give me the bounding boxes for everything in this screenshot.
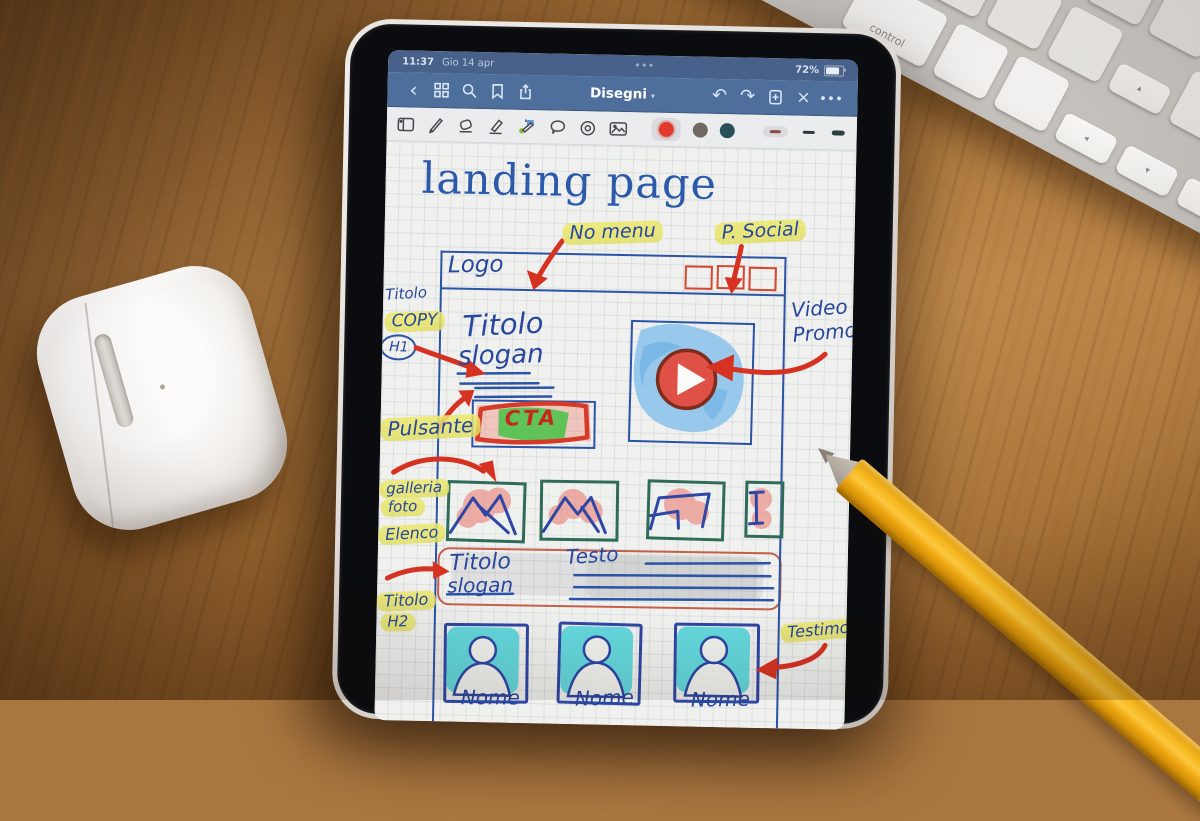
gallery-thumbnail	[744, 481, 784, 539]
document-title[interactable]: Disegni▾	[539, 84, 705, 103]
insert-image-icon[interactable]	[609, 116, 628, 140]
battery-percent: 72%	[795, 64, 819, 75]
back-icon[interactable]: ‹	[399, 77, 427, 102]
annotation-copy: COPY	[384, 311, 444, 333]
add-page-icon[interactable]	[761, 85, 789, 110]
page-thumbnails-icon[interactable]	[427, 78, 455, 103]
document-title-label: Disegni	[590, 85, 647, 102]
annotation-titolo-h1: Titolo	[385, 285, 428, 303]
page-title: landing page	[421, 154, 717, 210]
hero-title: Titolo	[462, 308, 544, 342]
arrow-left-icon: ◂	[1058, 120, 1114, 156]
search-icon[interactable]	[455, 78, 483, 103]
annotation-promo: Promo	[792, 320, 857, 346]
video-box	[628, 320, 755, 445]
eraser-tool-icon[interactable]	[457, 113, 475, 137]
more-icon[interactable]: •••	[817, 86, 845, 111]
gallery-thumbnail	[539, 480, 619, 542]
annotation-no-menu: No menu	[562, 220, 663, 245]
stroke-medium[interactable]	[800, 120, 818, 144]
sidebar-panel-icon[interactable]	[397, 112, 415, 136]
airpods-case-led	[159, 384, 165, 390]
color-swatch-red-selected[interactable]	[652, 118, 681, 142]
testo-label: Testo	[565, 544, 619, 568]
shape-recognition-tool-icon[interactable]	[517, 114, 537, 138]
annotation-testimony: Testimony	[780, 616, 857, 643]
color-swatch-teal[interactable]	[720, 123, 735, 138]
annotation-elenco: Elenco	[378, 523, 446, 545]
battery-icon	[824, 65, 844, 76]
highlighter-tool-icon[interactable]	[487, 114, 505, 138]
logo-label: Logo	[448, 253, 504, 278]
pen-tool-icon[interactable]	[427, 112, 445, 136]
color-swatch-gray[interactable]	[693, 122, 708, 137]
ipad: 11:37 Gio 14 apr ••• 72% ‹ Disegni▾	[331, 18, 902, 729]
keyboard-key	[932, 22, 1010, 100]
keyboard-key	[992, 55, 1070, 133]
status-time: 11:37	[402, 56, 434, 68]
annotation-h1: H1	[389, 340, 409, 355]
arrow-left-key: ◂	[1053, 112, 1118, 166]
arrow-right-key: ▸	[1175, 176, 1200, 230]
chevron-down-icon: ▾	[651, 92, 655, 101]
annotation-titolo-h2: Titolo	[376, 590, 435, 612]
cta-label: CTA	[505, 407, 559, 430]
annotation-foto: foto	[381, 498, 425, 517]
status-date: Gio 14 apr	[442, 57, 495, 69]
stroke-thin-selected[interactable]	[763, 126, 788, 137]
gallery-thumbnail	[446, 480, 527, 543]
annotation-p-social: P. Social	[714, 219, 806, 245]
social-icon-box	[684, 265, 712, 290]
status-ellipsis[interactable]: •••	[494, 58, 795, 74]
bookmark-icon[interactable]	[483, 79, 511, 104]
social-icon-box	[716, 265, 744, 290]
arrow-right-icon: ▸	[1180, 185, 1200, 221]
arrow-down-icon: ▾	[1119, 153, 1175, 189]
stickers-tool-icon[interactable]	[579, 116, 597, 140]
stroke-thick[interactable]	[829, 121, 847, 145]
nome-label: Nome	[575, 687, 635, 710]
keyboard-key	[1046, 5, 1124, 83]
drawing-canvas[interactable]: landing page No menu P. Social Logo Tito…	[374, 141, 856, 730]
arrow-up-icon: ▴	[1112, 71, 1168, 107]
ipad-bezel: 11:37 Gio 14 apr ••• 72% ‹ Disegni▾	[337, 23, 897, 724]
arrow-down-key: ▾	[1114, 144, 1179, 198]
redo-icon[interactable]: ↷	[733, 84, 761, 109]
share-icon[interactable]	[511, 80, 539, 105]
ipad-screen: 11:37 Gio 14 apr ••• 72% ‹ Disegni▾	[374, 50, 858, 730]
annotation-video: Video	[790, 296, 848, 321]
gallery-thumbnail	[646, 479, 726, 541]
annotation-pulsante: Pulsante	[380, 414, 481, 442]
annotation-h2: H2	[380, 613, 415, 631]
hero-subtitle: slogan	[458, 341, 544, 371]
annotation-galleria: galleria	[379, 479, 449, 499]
section-title: Titolo	[449, 550, 511, 575]
social-icon-box	[748, 267, 776, 292]
nome-label: Nome	[461, 687, 520, 708]
undo-icon[interactable]: ↶	[705, 84, 733, 109]
close-icon[interactable]: ×	[789, 85, 817, 110]
lasso-tool-icon[interactable]	[549, 115, 567, 139]
section-subtitle: slogan	[447, 575, 513, 597]
